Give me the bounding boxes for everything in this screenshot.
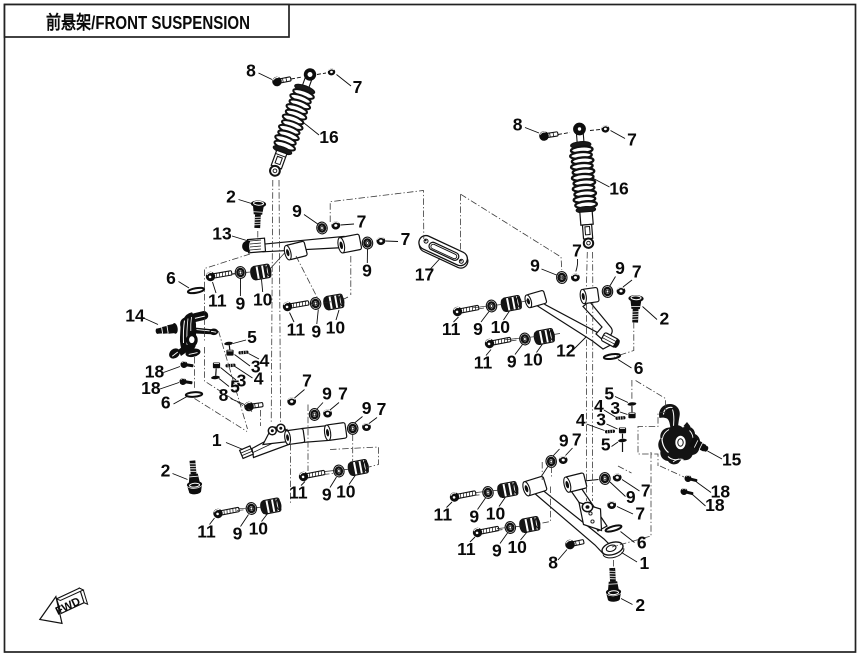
svg-text:7: 7 xyxy=(338,384,348,404)
svg-text:7: 7 xyxy=(572,241,582,261)
svg-text:11: 11 xyxy=(457,539,476,559)
svg-text:15: 15 xyxy=(722,450,742,470)
svg-text:6: 6 xyxy=(637,533,647,553)
svg-text:3: 3 xyxy=(596,410,606,430)
svg-text:9: 9 xyxy=(233,524,243,544)
svg-text:9: 9 xyxy=(362,261,372,281)
svg-text:10: 10 xyxy=(523,350,543,370)
svg-text:5: 5 xyxy=(247,327,257,347)
svg-text:10: 10 xyxy=(249,519,269,539)
svg-text:9: 9 xyxy=(362,398,372,418)
svg-text:7: 7 xyxy=(401,229,411,249)
svg-text:1: 1 xyxy=(212,430,222,450)
svg-text:11: 11 xyxy=(474,353,493,373)
svg-text:6: 6 xyxy=(634,358,644,378)
svg-text:7: 7 xyxy=(302,371,312,391)
svg-text:14: 14 xyxy=(125,306,145,326)
svg-text:10: 10 xyxy=(326,318,346,338)
svg-text:9: 9 xyxy=(626,487,636,507)
svg-text:6: 6 xyxy=(161,393,171,413)
svg-text:7: 7 xyxy=(353,77,363,97)
svg-text:11: 11 xyxy=(208,291,227,311)
svg-text:13: 13 xyxy=(212,224,232,244)
svg-text:10: 10 xyxy=(253,290,273,310)
svg-text:9: 9 xyxy=(473,319,483,339)
svg-text:7: 7 xyxy=(572,430,582,450)
svg-text:7: 7 xyxy=(632,262,642,282)
svg-text:9: 9 xyxy=(236,294,246,314)
svg-text:9: 9 xyxy=(559,431,569,451)
svg-text:9: 9 xyxy=(530,256,540,276)
svg-text:10: 10 xyxy=(507,537,527,557)
svg-text:9: 9 xyxy=(311,322,321,342)
svg-text:18: 18 xyxy=(141,378,161,398)
svg-text:2: 2 xyxy=(635,595,645,615)
svg-text:9: 9 xyxy=(322,384,332,404)
svg-text:10: 10 xyxy=(336,482,356,502)
svg-text:5: 5 xyxy=(601,435,611,455)
svg-text:11: 11 xyxy=(434,505,453,525)
svg-text:9: 9 xyxy=(615,258,625,278)
svg-text:2: 2 xyxy=(161,461,171,481)
svg-text:8: 8 xyxy=(219,385,229,405)
svg-text:18: 18 xyxy=(705,495,725,515)
svg-text:11: 11 xyxy=(442,319,461,339)
svg-text:11: 11 xyxy=(287,320,306,340)
svg-text:11: 11 xyxy=(197,522,216,542)
svg-text:16: 16 xyxy=(319,127,339,147)
svg-text:9: 9 xyxy=(292,201,302,221)
svg-text:2: 2 xyxy=(226,187,236,207)
svg-text:10: 10 xyxy=(491,317,511,337)
svg-text:2: 2 xyxy=(660,309,670,329)
svg-text:1: 1 xyxy=(640,553,650,573)
svg-text:12: 12 xyxy=(556,341,576,361)
svg-text:7: 7 xyxy=(627,130,637,150)
svg-text:4: 4 xyxy=(254,369,264,389)
svg-text:11: 11 xyxy=(289,483,308,503)
svg-text:前悬架/FRONT SUSPENSION: 前悬架/FRONT SUSPENSION xyxy=(46,12,250,33)
svg-text:8: 8 xyxy=(513,115,523,135)
svg-text:10: 10 xyxy=(486,504,506,524)
svg-text:6: 6 xyxy=(166,268,176,288)
svg-text:8: 8 xyxy=(246,61,256,81)
svg-text:4: 4 xyxy=(576,410,586,430)
svg-text:5: 5 xyxy=(230,377,240,397)
svg-text:16: 16 xyxy=(609,179,629,199)
svg-text:8: 8 xyxy=(548,553,558,573)
svg-text:7: 7 xyxy=(377,399,387,419)
svg-text:7: 7 xyxy=(635,504,645,524)
svg-text:7: 7 xyxy=(357,212,367,232)
svg-text:3: 3 xyxy=(610,398,620,418)
svg-text:7: 7 xyxy=(641,481,651,501)
svg-text:4: 4 xyxy=(260,351,270,371)
